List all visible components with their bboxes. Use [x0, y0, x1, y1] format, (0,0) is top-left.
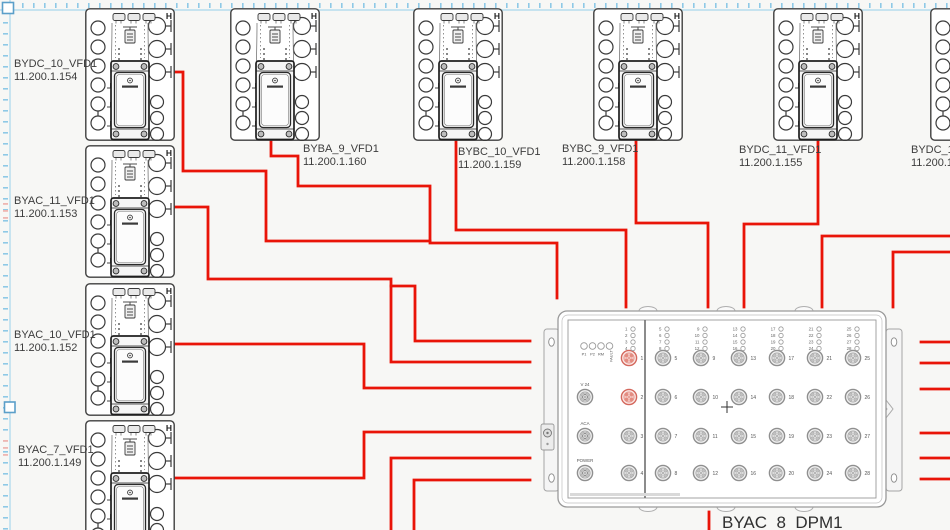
dpm-led [741, 340, 745, 344]
dpm-port-number: 3 [641, 434, 644, 440]
dpm-port[interactable] [655, 428, 670, 443]
dpm-led-number: 26 [847, 333, 852, 338]
dpm-port-number: 24 [827, 471, 833, 477]
diagram-drawing: H [0, 0, 950, 530]
wire-right-a[interactable] [822, 236, 950, 307]
dpm-port-number: 23 [827, 434, 833, 440]
dpm-led [741, 346, 745, 350]
dpm-port[interactable] [693, 389, 708, 404]
dpm-led [817, 327, 821, 331]
dpm-port[interactable] [693, 465, 708, 480]
dpm-led-number: 19 [771, 340, 776, 345]
dpm-led-number: 17 [771, 327, 776, 332]
dpm-port-number: 9 [713, 356, 716, 362]
dpm-led [631, 333, 635, 337]
dpm-port[interactable] [621, 428, 636, 443]
dpm-led [779, 327, 783, 331]
dpm-port-label: POWER [577, 458, 594, 463]
device-name: BYDC_10_VFD1 [14, 58, 97, 71]
dpm-port-number: 22 [827, 395, 833, 401]
dpm-port-number: 13 [751, 356, 757, 362]
dpm-port-highlighted[interactable] [621, 350, 636, 365]
device-label: BYAC_10_VFD111.200.1.152 [14, 329, 96, 355]
dpm-port[interactable] [577, 465, 592, 480]
device-ip: 11.200.1.153 [14, 208, 95, 221]
dpm-led-number: 24 [809, 346, 814, 351]
dpm-port[interactable] [807, 389, 822, 404]
dpm-status-led [589, 343, 596, 350]
dpm-port-number: 25 [865, 356, 871, 362]
wire-byac10[interactable] [175, 344, 530, 388]
diagram-canvas: H [0, 0, 950, 530]
dpm-port-number: 16 [751, 471, 757, 477]
dpm-led [855, 327, 859, 331]
dpm-led [779, 333, 783, 337]
wire-byac7[interactable] [175, 432, 530, 478]
device-ip: 11.200.1.158 [562, 156, 638, 169]
device-label: BYDC_10_VFD111.200.1.154 [14, 58, 97, 84]
dpm-port-number: 12 [713, 471, 719, 477]
dpm-led [817, 346, 821, 350]
vfd-device[interactable] [414, 9, 502, 141]
dpm-port-number: 19 [789, 434, 795, 440]
dpm-port-number: 1 [641, 356, 644, 362]
device-ip: 11.200.1.159 [458, 159, 541, 172]
dpm-port[interactable] [577, 389, 592, 404]
dpm-status-label: FAULT [609, 350, 614, 362]
dpm-port-number: 15 [751, 434, 757, 440]
dpm-led [741, 327, 745, 331]
dpm-port[interactable] [845, 465, 860, 480]
dpm-led [741, 333, 745, 337]
vfd-device[interactable] [86, 284, 174, 416]
dpm-led [631, 340, 635, 344]
device-ip: 11.200.1. [911, 157, 950, 170]
dpm-port-number: 14 [751, 395, 757, 401]
device-label: BYAC_7_VFD111.200.1.149 [18, 444, 94, 470]
dpm-status-label: P1 [582, 352, 587, 357]
dpm-port[interactable] [769, 350, 784, 365]
device-name: BYAC_7_VFD1 [18, 444, 94, 457]
dpm-status-led [581, 343, 588, 350]
dpm-port[interactable] [621, 465, 636, 480]
dpm-port-number: 7 [675, 434, 678, 440]
device-ip: 11.200.1.149 [18, 457, 94, 470]
dpm-led-number: 21 [809, 327, 814, 332]
device-ip: 11.200.1.155 [739, 157, 821, 170]
vfd-device[interactable] [86, 421, 174, 530]
dpm-port-number: 21 [827, 356, 833, 362]
dpm-port[interactable] [845, 389, 860, 404]
selection-handle-topleft[interactable] [3, 3, 14, 14]
dpm-port-number: 20 [789, 471, 795, 477]
dpm-port[interactable] [807, 350, 822, 365]
dpm-led [817, 333, 821, 337]
dpm-led-number: 18 [771, 333, 776, 338]
dpm-port-number: 11 [713, 434, 718, 440]
dpm-port[interactable] [769, 428, 784, 443]
device-label: BYBC_10_VFD111.200.1.159 [458, 146, 541, 172]
wire-bottom-a[interactable] [391, 458, 530, 530]
dpm-led [631, 346, 635, 350]
dpm-port-number: 27 [865, 434, 871, 440]
dpm-led-number: 27 [847, 340, 852, 345]
vfd-device[interactable] [231, 9, 319, 141]
dpm-port[interactable] [731, 465, 746, 480]
dpm-port-number: 5 [675, 356, 678, 362]
dpm-led-number: 13 [733, 327, 738, 332]
wire-bybc9[interactable] [636, 141, 708, 307]
dpm-led-number: 28 [847, 346, 852, 351]
device-name: BYBC_9_VFD1 [562, 143, 638, 156]
dpm-port[interactable] [577, 428, 592, 443]
vfd-device[interactable] [594, 9, 682, 141]
dpm-port-number: 10 [713, 395, 719, 401]
dpm-port[interactable] [769, 389, 784, 404]
dpm-led-number: 11 [695, 340, 700, 345]
dpm-port-number: 6 [675, 395, 678, 401]
dpm-status-led [606, 343, 613, 350]
dpm-port[interactable] [845, 350, 860, 365]
device-label: BYDC_11_VFD111.200.1.155 [739, 144, 821, 170]
dpm-led [631, 327, 635, 331]
dpm-led [703, 346, 707, 350]
dpm-port[interactable] [731, 350, 746, 365]
device-name: BYBA_9_VFD1 [303, 143, 379, 156]
dpm-port-number: 18 [789, 395, 795, 401]
device-name: BYDC_12 [911, 144, 950, 157]
vfd-device[interactable] [931, 9, 950, 141]
dpm-port[interactable] [769, 465, 784, 480]
dpm-led-number: 23 [809, 340, 814, 345]
dpm-led [855, 333, 859, 337]
dpm-led [665, 327, 669, 331]
selection-ticks-top [22, 3, 948, 8]
dpm-port-label: V 24 [580, 382, 590, 387]
dpm-led-number: 22 [809, 333, 814, 338]
dpm-port-label: ACA [580, 421, 589, 426]
dpm-led [855, 340, 859, 344]
dpm-port[interactable] [731, 428, 746, 443]
dpm-port[interactable] [845, 428, 860, 443]
device-name: BYDC_11_VFD1 [739, 144, 821, 157]
dpm-led [855, 346, 859, 350]
ruler-pink-ticks [3, 203, 8, 456]
device-label: BYBC_9_VFD111.200.1.158 [562, 143, 638, 169]
dpm-status-led [598, 343, 605, 350]
device-ip: 11.200.1.154 [14, 71, 97, 84]
dpm-led [665, 340, 669, 344]
device-label: BYDC_1211.200.1. [911, 144, 950, 170]
device-label: BYAC_11_VFD111.200.1.153 [14, 195, 95, 221]
dpm-led [703, 333, 707, 337]
dpm-left-flange [541, 329, 559, 491]
dpm-led-number: 15 [733, 340, 738, 345]
dpm-led [665, 346, 669, 350]
dpm-port[interactable] [655, 465, 670, 480]
dpm-port[interactable] [693, 350, 708, 365]
dpm-port-number: 26 [865, 395, 871, 401]
dpm-port[interactable] [693, 428, 708, 443]
vfd-device[interactable] [774, 9, 862, 141]
dpm-led [703, 327, 707, 331]
dpm-led-number: 16 [733, 346, 738, 351]
vfd-device[interactable] [86, 146, 174, 278]
dpm-port[interactable] [655, 350, 670, 365]
dpm-status-label: RM [598, 352, 604, 357]
vfd-device[interactable] [86, 9, 174, 141]
device-ip: 11.200.1.152 [14, 342, 96, 355]
dpm-status-label: P2 [590, 352, 595, 357]
dpm-led-number: 20 [771, 346, 776, 351]
dpm-port-number: 28 [865, 471, 871, 477]
dpm-led [665, 333, 669, 337]
dpm-led-number: 14 [733, 333, 738, 338]
dpm-port[interactable] [655, 389, 670, 404]
dpm-led [779, 346, 783, 350]
dpm-port-number: 4 [641, 471, 644, 477]
dpm-led-number: 12 [695, 346, 700, 351]
dpm-device[interactable]: 1122334455667788991010111112121313141415… [541, 307, 902, 512]
dpm-led [779, 340, 783, 344]
wire-byac11-br[interactable] [391, 286, 530, 341]
dpm-port[interactable] [731, 389, 746, 404]
dpm-led [817, 340, 821, 344]
dpm-port[interactable] [807, 465, 822, 480]
wire-bottom-b[interactable] [414, 480, 530, 530]
device-label: BYBA_9_VFD111.200.1.160 [303, 143, 379, 169]
dpm-port-number: 2 [641, 395, 644, 401]
dpm-led [703, 340, 707, 344]
dpm-device-label: BYAC_8_DPM1 [722, 513, 843, 530]
wire-right-b[interactable] [893, 252, 950, 307]
device-name: BYAC_11_VFD1 [14, 195, 95, 208]
dpm-led-number: 10 [695, 333, 700, 338]
device-name: BYAC_10_VFD1 [14, 329, 96, 342]
dpm-body [558, 311, 886, 507]
device-ip: 11.200.1.160 [303, 156, 379, 169]
device-name: BYBC_10_VFD1 [458, 146, 541, 159]
dpm-led-number: 25 [847, 327, 852, 332]
dpm-port-highlighted[interactable] [621, 389, 636, 404]
dpm-port-number: 8 [675, 471, 678, 477]
selection-handle-left[interactable] [5, 402, 16, 413]
selection-ticks-left [3, 22, 8, 530]
dpm-port-number: 17 [789, 356, 795, 362]
dpm-port[interactable] [807, 428, 822, 443]
